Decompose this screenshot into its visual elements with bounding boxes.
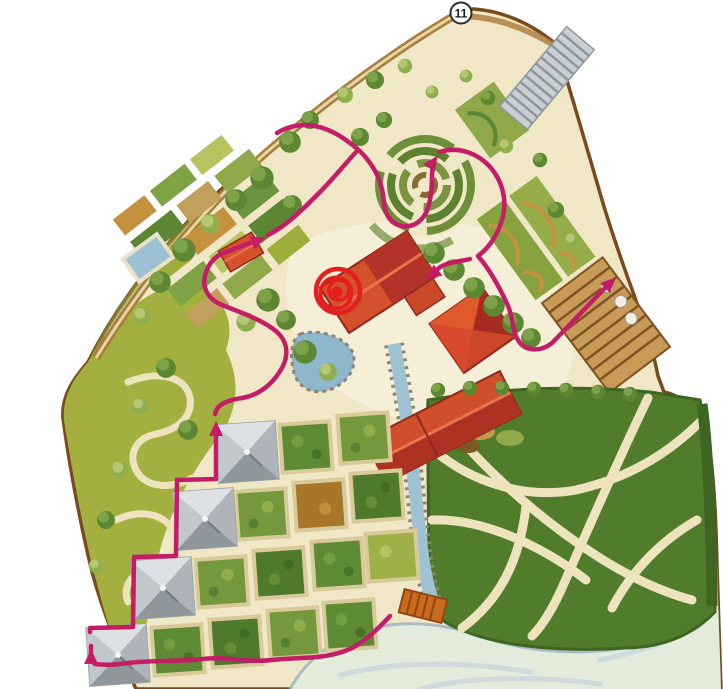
section-marker-label: 11	[455, 7, 468, 21]
garden-map-canvas: 11	[0, 0, 723, 689]
garden-map: 11	[0, 0, 723, 689]
section-marker-11: 11	[451, 3, 472, 24]
